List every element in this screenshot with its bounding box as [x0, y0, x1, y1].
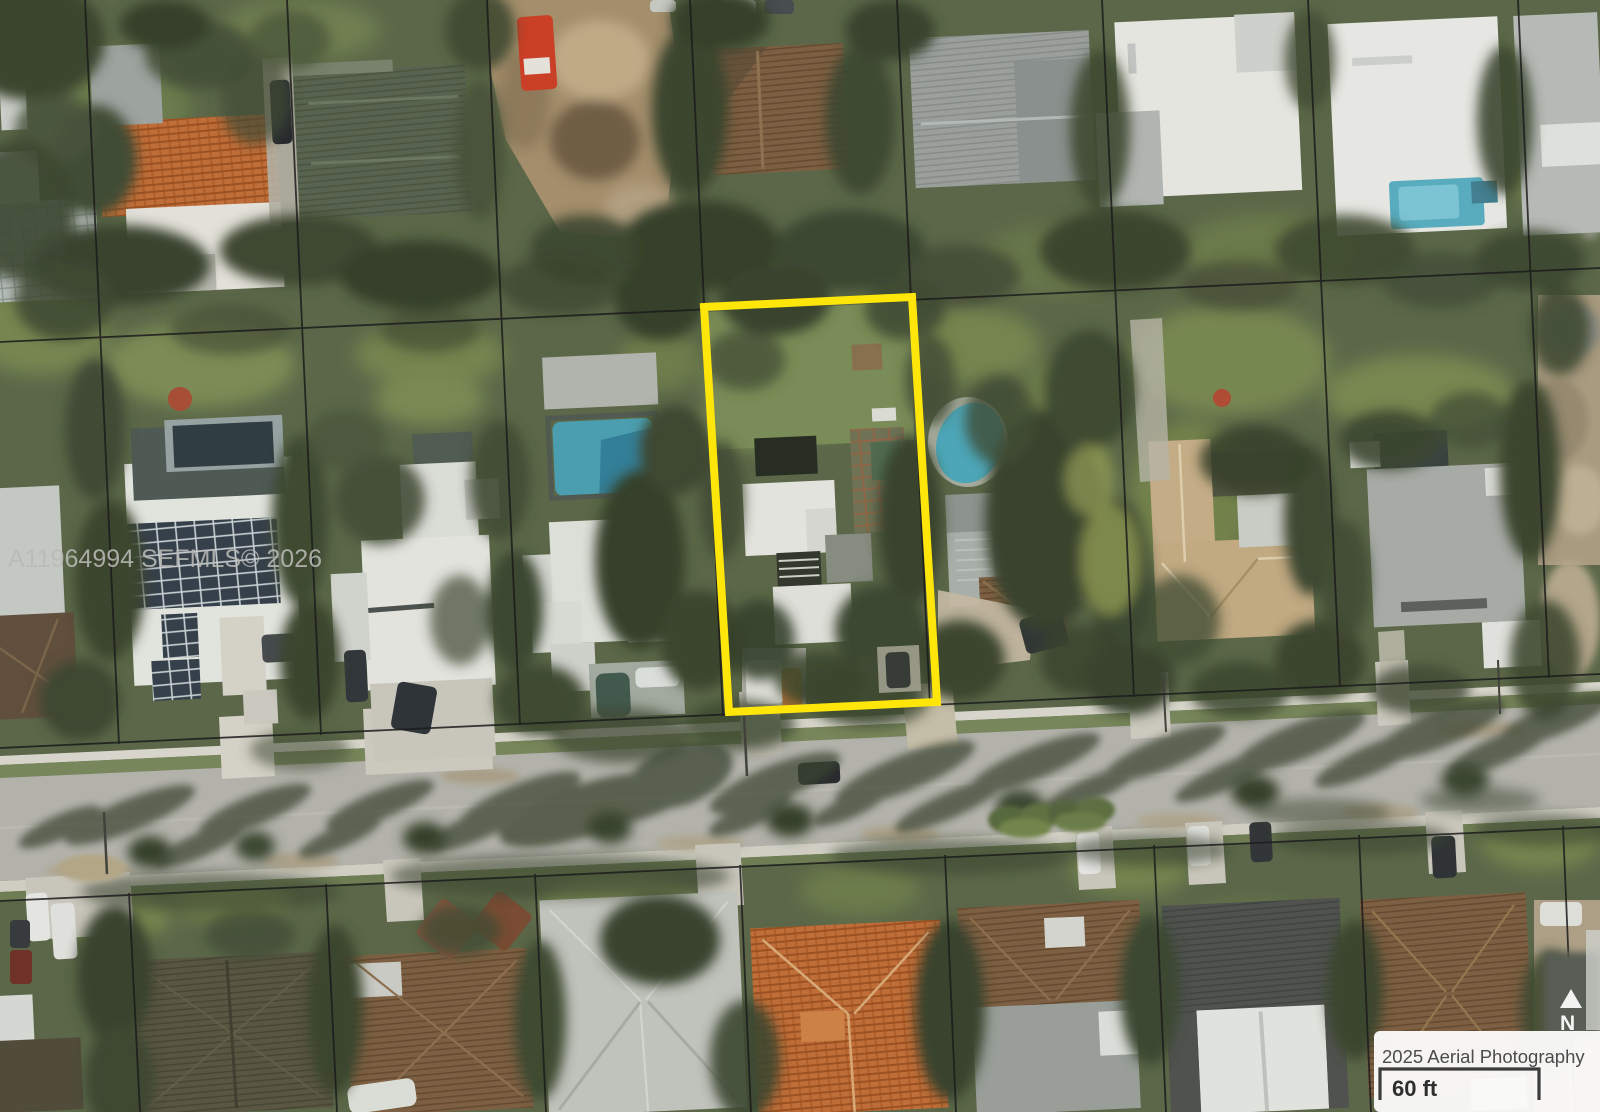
- svg-text:2025 Aerial Photography: 2025 Aerial Photography: [1382, 1046, 1585, 1067]
- svg-text:A11964994 SEFMLS© 2026: A11964994 SEFMLS© 2026: [8, 545, 322, 573]
- svg-text:60 ft: 60 ft: [1392, 1076, 1438, 1101]
